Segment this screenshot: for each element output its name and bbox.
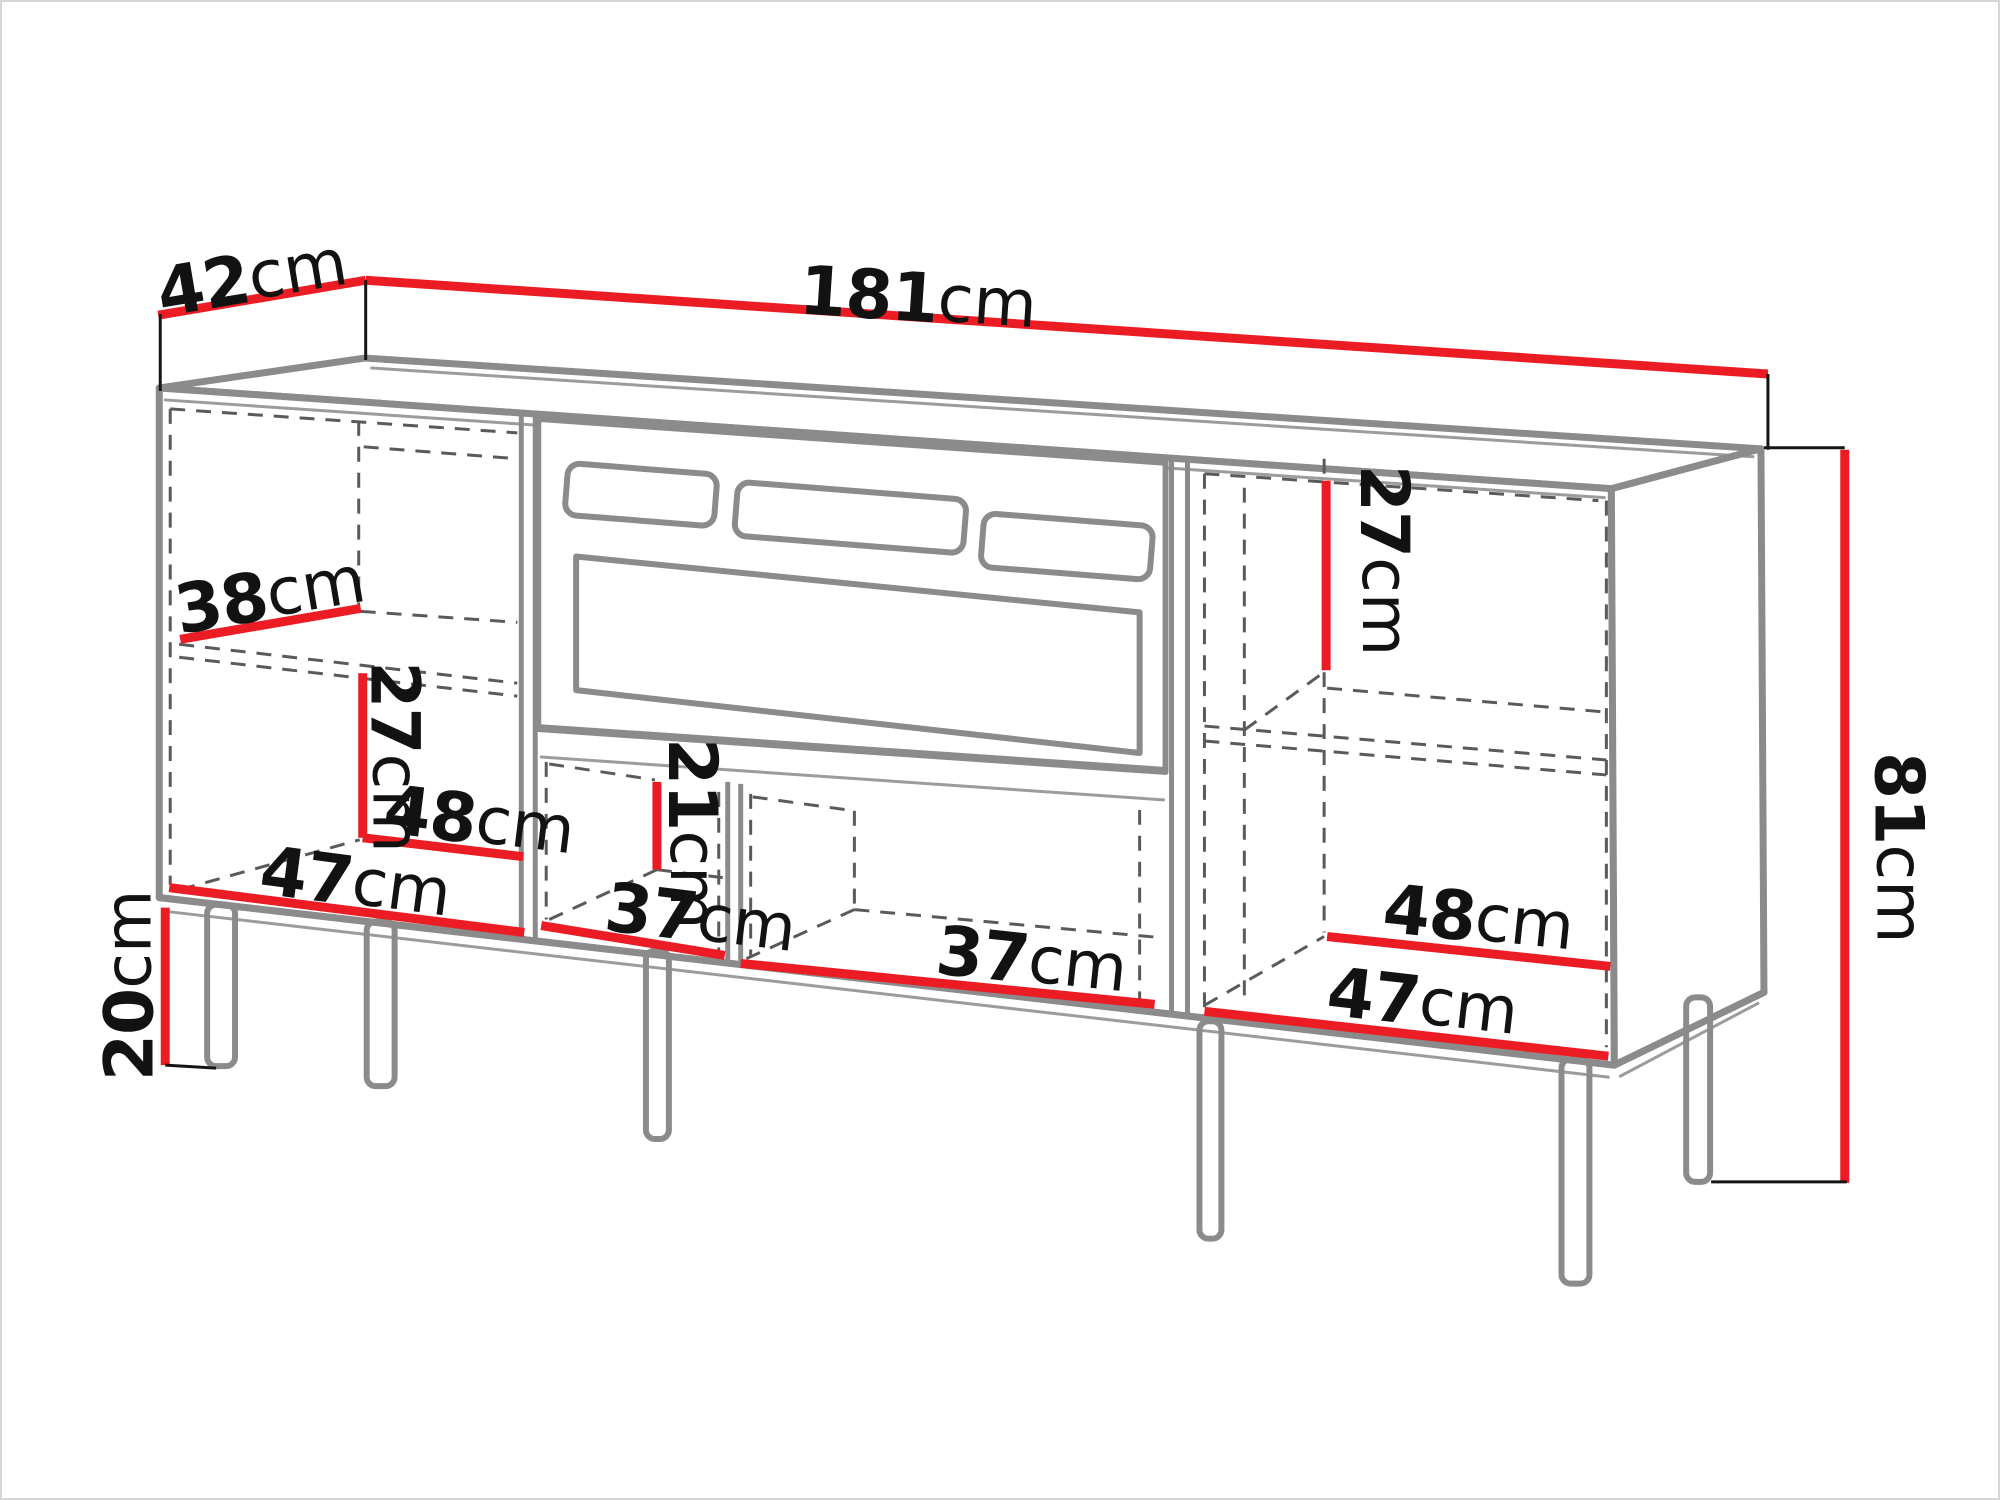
label-leg-height: 20cm — [89, 890, 168, 1082]
dimension-diagram-canvas: 42cm 181cm 81cm 20cm 38cm 27cm 48cm 47cm… — [0, 0, 2000, 1500]
leg-3 — [646, 950, 669, 1138]
dim-line-width-181 — [366, 280, 1768, 374]
vent-slot-left — [564, 463, 717, 526]
label-right-upper-height: 27cm — [1345, 465, 1424, 657]
label-depth: 42cm — [151, 222, 353, 332]
label-height: 81cm — [1860, 752, 1939, 944]
leg-1 — [207, 905, 235, 1067]
leg-2 — [367, 922, 395, 1087]
vent-slot-right — [980, 513, 1153, 580]
leg-4 — [1199, 1021, 1221, 1238]
furniture-dimension-diagram: 42cm 181cm 81cm 20cm 38cm 27cm 48cm 47cm… — [2, 2, 1998, 1498]
cabinet-right-side-face — [1611, 449, 1764, 1065]
leg-5 — [1561, 1059, 1589, 1283]
label-width: 181cm — [797, 250, 1039, 345]
